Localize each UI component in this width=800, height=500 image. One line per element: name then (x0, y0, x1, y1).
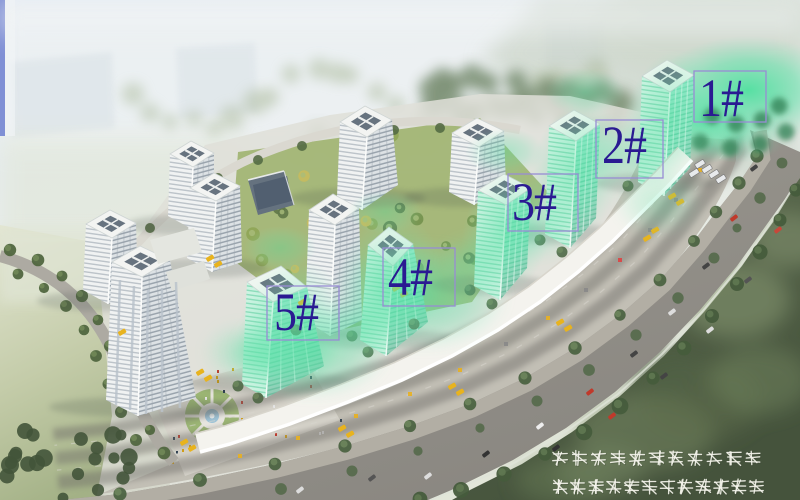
svg-text:1#: 1# (699, 67, 744, 127)
svg-text:4#: 4# (388, 246, 433, 306)
svg-text:3#: 3# (512, 171, 557, 231)
svg-text:5#: 5# (274, 281, 319, 341)
svg-text:2#: 2# (602, 114, 647, 174)
